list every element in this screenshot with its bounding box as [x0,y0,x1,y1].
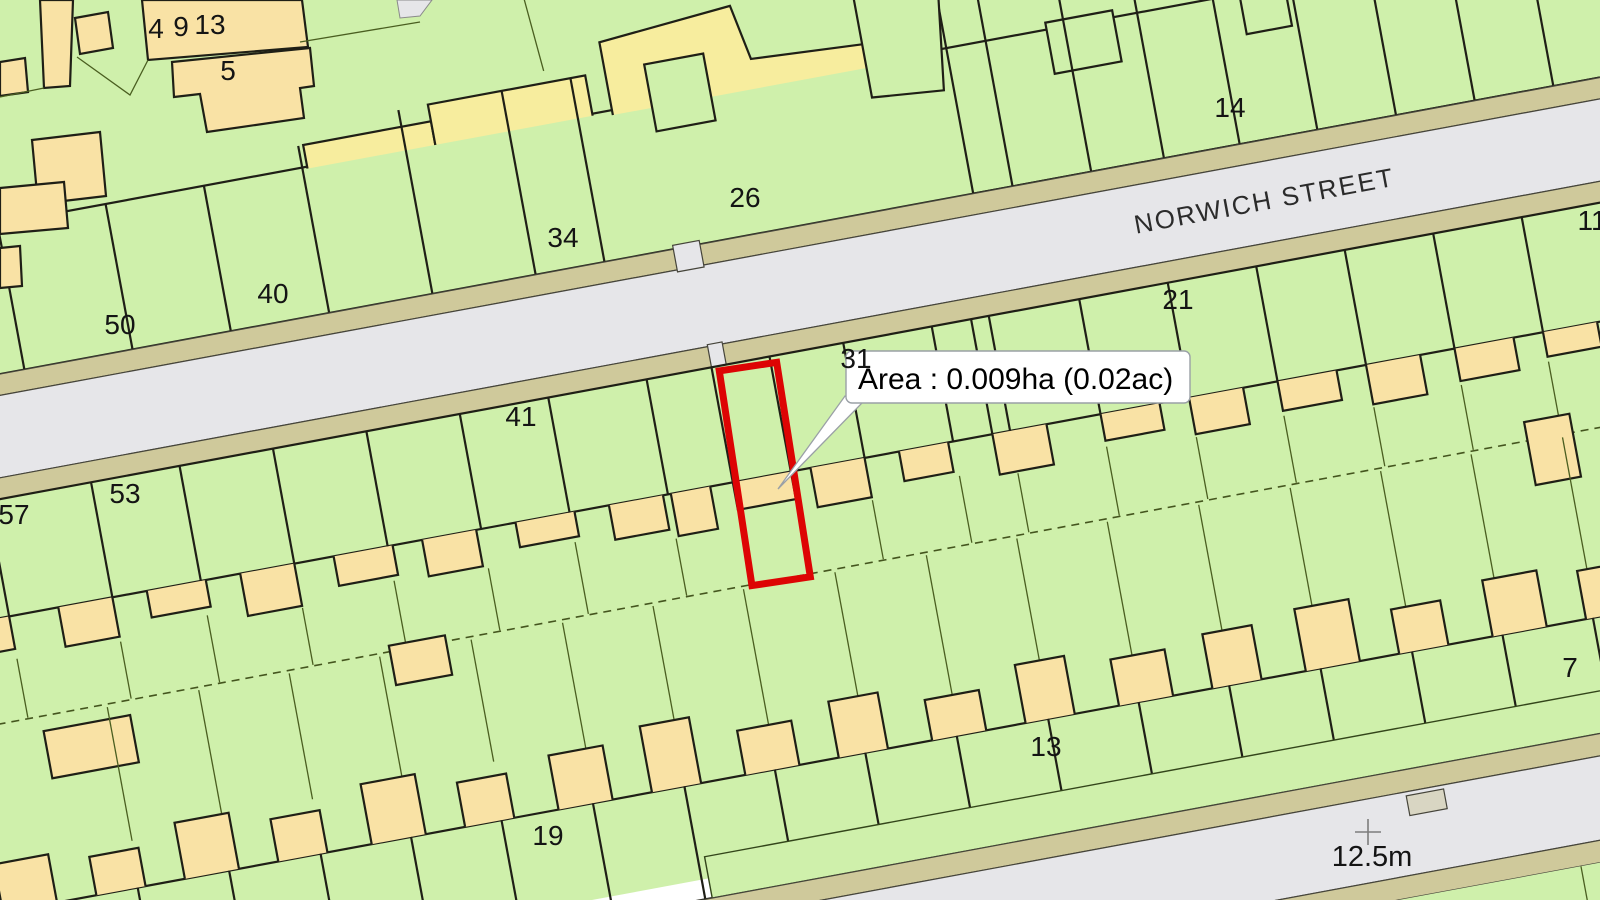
building-footprint [0,58,28,96]
parcel-label-40: 40 [257,278,288,309]
parcel-label-41: 41 [505,401,536,432]
building-footprint [0,182,68,234]
parcel-label-13: 13 [194,9,225,40]
building-footprint [0,246,22,288]
building-footprint [40,0,73,88]
green-backland-notch [644,54,715,132]
map-viewport: NORWICH STREET [0,0,1600,900]
scale-label: 12.5m [1332,841,1413,873]
parcel-label-26: 26 [729,182,760,213]
parcel-label-7: 7 [1562,652,1578,683]
building-footprint [75,12,113,54]
parcel-label-50: 50 [104,309,135,340]
parcel-label-31: 31 [840,343,871,374]
cadastral-map: NORWICH STREET [0,0,1600,900]
area-measurement-text: Area : 0.009ha (0.02ac) [858,363,1173,396]
parcel-label-5: 5 [220,55,236,86]
parcel-label-57: 57 [0,499,30,530]
parcel-label-19: 19 [532,820,563,851]
alley-gap-north [673,240,704,271]
parcel-label-34: 34 [547,222,578,253]
map-rotated-fabric: NORWICH STREET [0,0,1600,900]
parcel-label-13b: 13 [1030,731,1061,762]
parcel-label-4: 4 [148,13,164,44]
parcel-label-21: 21 [1162,284,1193,315]
parcel-label-11: 11 [1577,205,1600,236]
parcel-label-14: 14 [1214,92,1245,123]
parcel-label-53: 53 [109,478,140,509]
green-backland-notch [1045,10,1121,74]
parcel-label-9: 9 [173,11,189,42]
